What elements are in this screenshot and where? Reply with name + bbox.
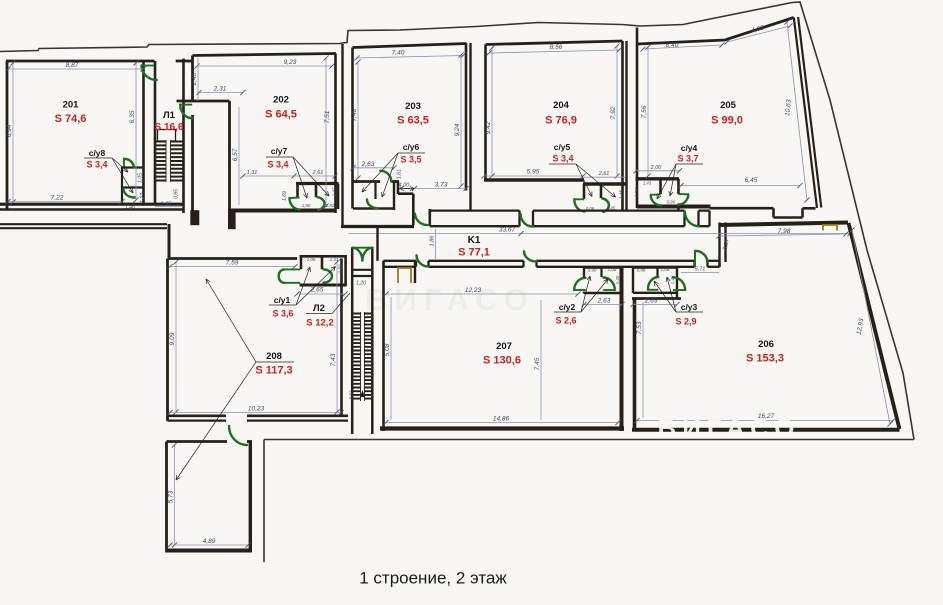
svg-text:4,89: 4,89	[203, 538, 216, 545]
svg-text:S 3,5: S 3,5	[400, 155, 421, 165]
svg-text:1,45: 1,45	[618, 190, 623, 199]
svg-text:ВИГАСО: ВИГАСО	[657, 413, 800, 443]
svg-text:6,35: 6,35	[129, 110, 136, 123]
svg-text:с/у8: с/у8	[89, 148, 106, 158]
svg-text:5,71: 5,71	[695, 267, 706, 273]
svg-text:7,59: 7,59	[226, 260, 239, 267]
svg-text:33,67: 33,67	[499, 227, 516, 234]
svg-text:1,45: 1,45	[670, 275, 675, 284]
svg-text:6,57: 6,57	[232, 148, 239, 161]
svg-text:1,69: 1,69	[282, 191, 288, 201]
svg-text:Л1: Л1	[163, 110, 176, 121]
svg-text:5,73: 5,73	[168, 490, 175, 503]
svg-text:0,90: 0,90	[588, 268, 597, 273]
svg-text:с/у3: с/у3	[681, 302, 698, 312]
svg-text:14,86: 14,86	[493, 416, 510, 423]
svg-text:8,87: 8,87	[66, 62, 79, 69]
svg-text:S 64,5: S 64,5	[265, 109, 297, 121]
svg-text:1,20: 1,20	[356, 281, 366, 287]
svg-text:0,95: 0,95	[174, 189, 180, 199]
svg-text:S 74,6: S 74,6	[55, 113, 87, 125]
svg-text:6,45: 6,45	[745, 177, 758, 184]
svg-text:S 99,0: S 99,0	[711, 115, 743, 127]
svg-text:S 3,7: S 3,7	[677, 154, 698, 164]
svg-text:2,63: 2,63	[644, 298, 658, 305]
svg-text:2,46: 2,46	[191, 72, 198, 86]
svg-text:1,90: 1,90	[302, 203, 311, 208]
svg-text:7,48: 7,48	[351, 108, 358, 121]
svg-text:1,86: 1,86	[430, 235, 436, 247]
svg-text:S 16,6: S 16,6	[155, 122, 184, 133]
svg-text:S 117,3: S 117,3	[255, 365, 292, 377]
svg-text:S 2,6: S 2,6	[555, 316, 576, 326]
svg-text:1,50: 1,50	[338, 264, 343, 273]
svg-text:1,61: 1,61	[397, 169, 403, 179]
svg-text:S 3,4: S 3,4	[267, 160, 288, 170]
svg-text:1,06: 1,06	[307, 257, 316, 262]
svg-text:1,31: 1,31	[330, 257, 339, 262]
svg-text:1,43: 1,43	[643, 181, 652, 186]
svg-text:208: 208	[266, 351, 282, 362]
svg-text:S 12,2: S 12,2	[306, 318, 333, 329]
svg-text:7,53: 7,53	[636, 321, 643, 334]
svg-text:1,08: 1,08	[608, 267, 617, 272]
svg-text:с/у5: с/у5	[554, 142, 571, 152]
svg-text:9,23: 9,23	[284, 59, 297, 66]
svg-text:2,31: 2,31	[213, 86, 227, 93]
svg-text:206: 206	[758, 339, 774, 350]
svg-text:10,23: 10,23	[248, 406, 265, 413]
svg-text:с/у1: с/у1	[274, 295, 291, 305]
svg-text:2,63: 2,63	[361, 161, 375, 168]
svg-text:204: 204	[553, 100, 570, 111]
svg-text:202: 202	[273, 95, 289, 106]
svg-text:K1: K1	[468, 235, 481, 246]
svg-text:S 3,4: S 3,4	[552, 154, 573, 164]
svg-text:0,96: 0,96	[667, 200, 676, 205]
svg-text:7,56: 7,56	[641, 105, 648, 118]
svg-text:1,08: 1,08	[661, 267, 670, 272]
svg-text:12,23: 12,23	[465, 287, 482, 294]
svg-text:с/у6: с/у6	[403, 142, 420, 152]
svg-text:205: 205	[720, 100, 737, 111]
svg-text:201: 201	[63, 100, 80, 111]
svg-text:5,08: 5,08	[384, 343, 391, 356]
svg-text:9,42: 9,42	[485, 121, 492, 134]
svg-text:1,85: 1,85	[161, 202, 173, 208]
svg-text:1,45: 1,45	[615, 275, 620, 284]
svg-text:7,22: 7,22	[51, 195, 64, 202]
svg-text:1,05: 1,05	[138, 173, 144, 183]
svg-text:2,61: 2,61	[598, 171, 610, 177]
svg-text:с/у7: с/у7	[271, 146, 288, 156]
svg-text:7,45: 7,45	[534, 357, 541, 370]
svg-text:4,00: 4,00	[399, 183, 411, 189]
svg-text:6,94: 6,94	[6, 124, 13, 137]
svg-text:S 3,4: S 3,4	[86, 160, 107, 170]
svg-text:1,54: 1,54	[634, 188, 639, 197]
svg-text:с/у4: с/у4	[681, 143, 698, 153]
svg-text:7,51: 7,51	[324, 110, 331, 123]
svg-text:S 3,6: S 3,6	[272, 309, 293, 319]
svg-text:1,47: 1,47	[332, 187, 337, 196]
svg-text:S 63,5: S 63,5	[397, 115, 429, 127]
svg-text:S 153,3: S 153,3	[746, 353, 784, 365]
svg-text:7,43: 7,43	[330, 353, 337, 366]
svg-text:2,63: 2,63	[597, 298, 611, 305]
svg-text:8,56: 8,56	[550, 44, 563, 51]
svg-text:1 строение, 2 этаж: 1 строение, 2 этаж	[359, 569, 507, 588]
svg-text:1,31: 1,31	[247, 170, 258, 176]
svg-text:S 77,1: S 77,1	[458, 247, 490, 259]
svg-text:5,95: 5,95	[527, 169, 540, 176]
svg-text:9,24: 9,24	[454, 123, 461, 136]
svg-text:0,98: 0,98	[637, 268, 646, 273]
svg-text:8,52: 8,52	[349, 390, 354, 399]
svg-text:S 76,9: S 76,9	[545, 115, 577, 127]
svg-text:2,00: 2,00	[650, 165, 663, 171]
svg-text:S 2,9: S 2,9	[675, 317, 696, 327]
svg-text:3,73: 3,73	[435, 182, 448, 189]
svg-text:9,09: 9,09	[169, 332, 176, 345]
svg-text:203: 203	[405, 101, 421, 112]
svg-text:2,61: 2,61	[312, 170, 324, 176]
svg-text:1,92: 1,92	[326, 203, 335, 208]
svg-text:7,40: 7,40	[392, 50, 405, 57]
svg-text:1,27: 1,27	[140, 193, 146, 203]
svg-text:207: 207	[496, 341, 512, 352]
svg-text:Л2: Л2	[313, 303, 325, 314]
svg-text:6,40: 6,40	[666, 42, 679, 49]
svg-text:с/у2: с/у2	[559, 302, 576, 312]
svg-text:7,98: 7,98	[778, 228, 791, 235]
svg-text:7,92: 7,92	[610, 106, 617, 119]
svg-text:1,46: 1,46	[125, 205, 135, 211]
svg-text:S 130,6: S 130,6	[483, 355, 521, 367]
